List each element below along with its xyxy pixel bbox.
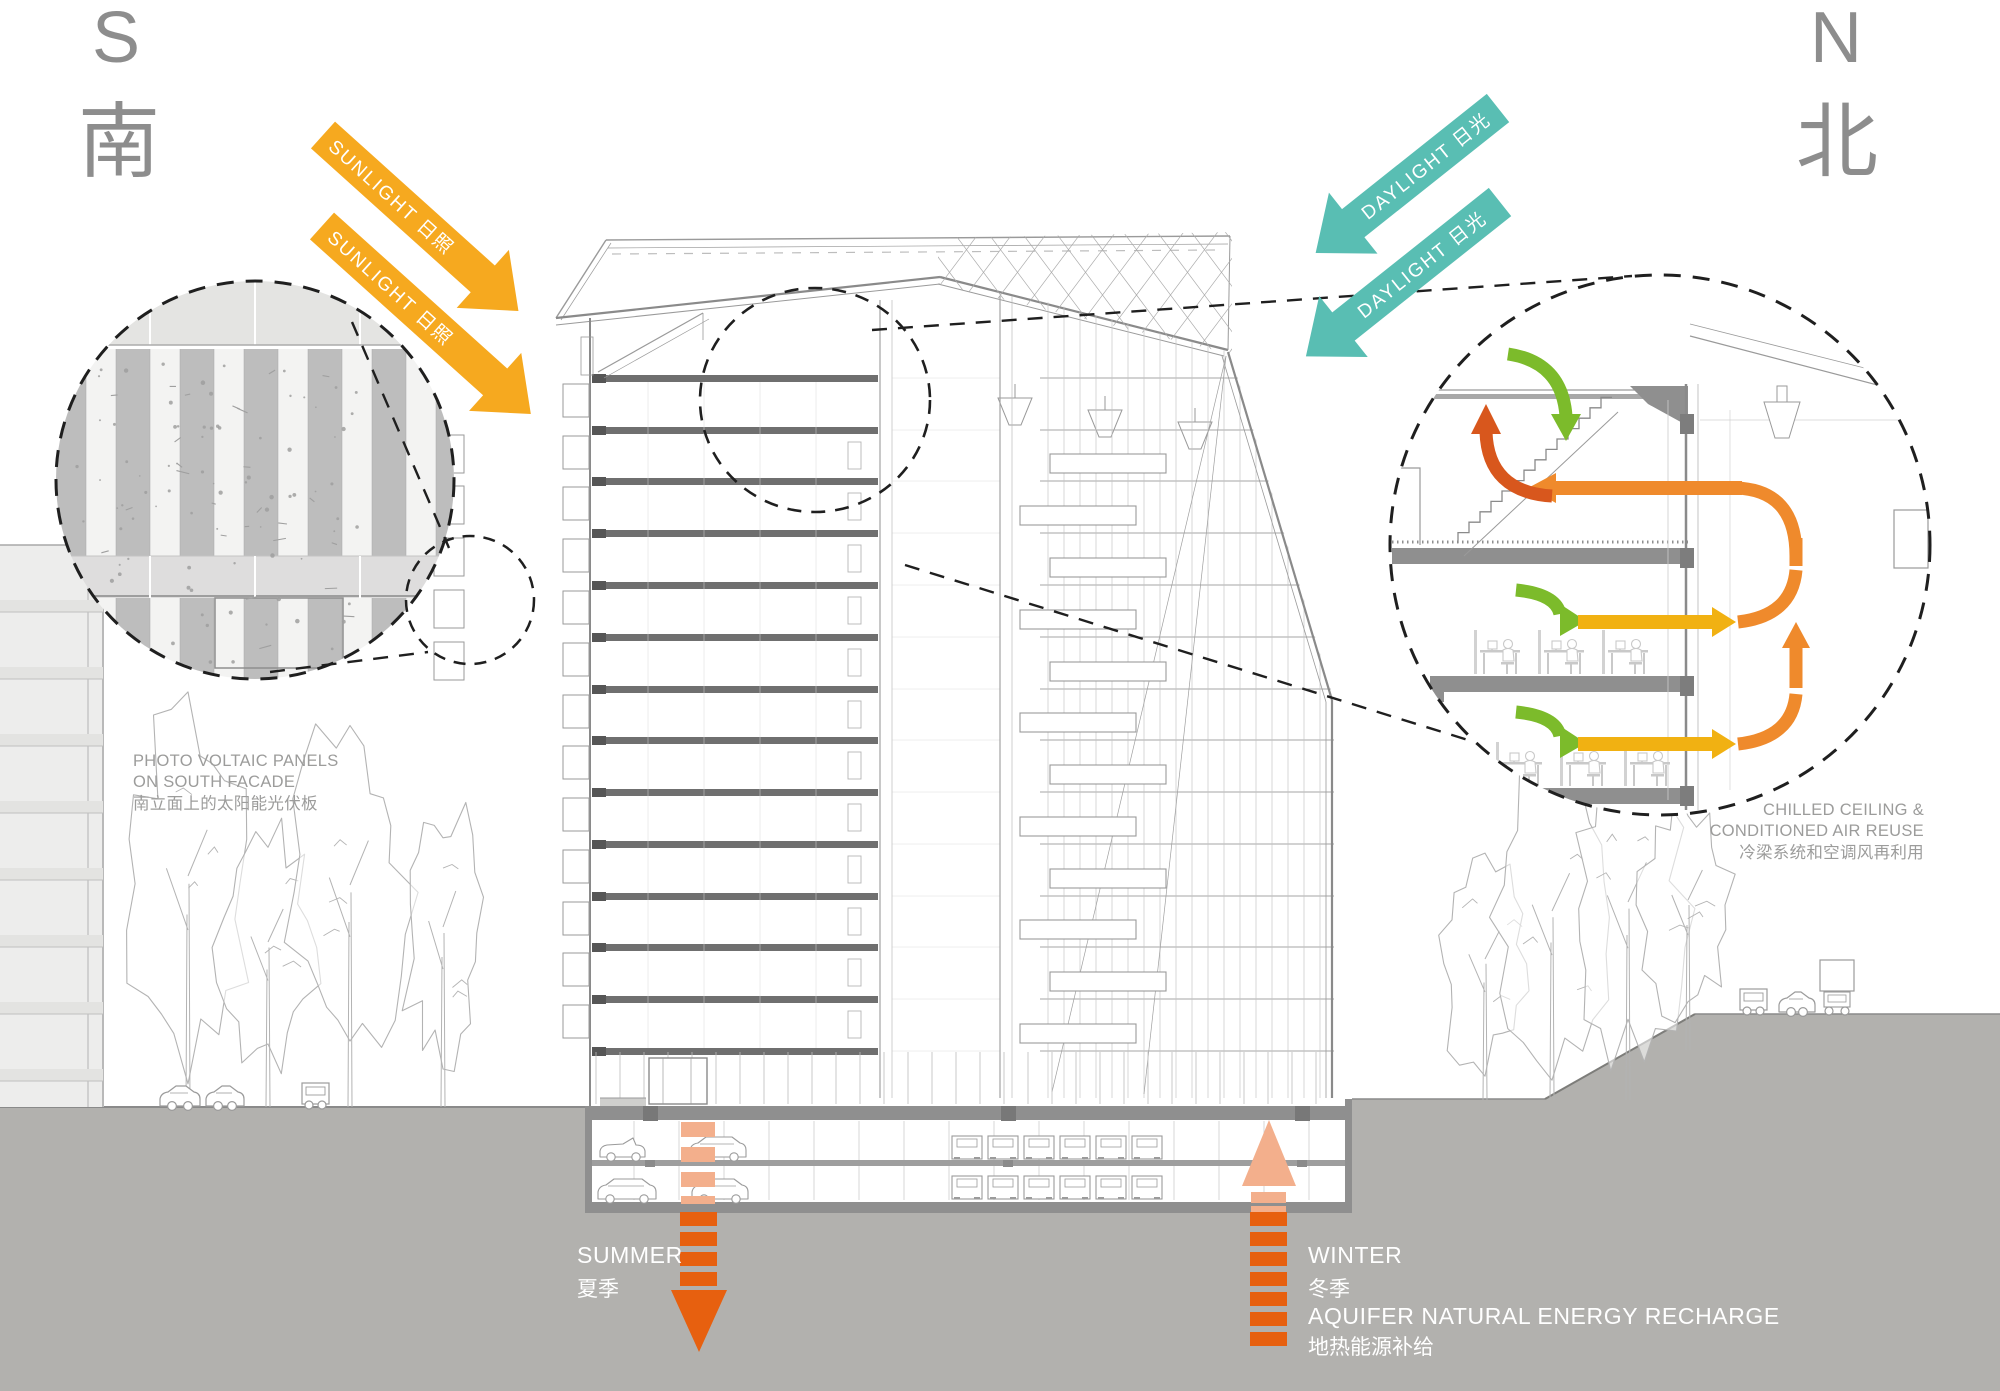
summer-label: SUMMER (577, 1242, 683, 1268)
compass-south-cn: 南 (78, 97, 160, 188)
chilled-label-line3: 冷梁系统和空调风再利用 (1739, 843, 1924, 862)
compass-north-cn: 北 (1796, 97, 1878, 188)
chilled-ceiling-detail-circle (1390, 275, 1952, 815)
building-section-diagram: SUNLIGHT 日照 SUNLIGHT 日照 DAYLIGHT 日光 DAYL… (0, 0, 2000, 1391)
aquifer-label-cn: 地热能源补给 (1308, 1336, 1434, 1359)
chilled-label-line2: CONDITIONED AIR REUSE (1710, 822, 1924, 840)
chilled-label-line1: CHILLED CEILING & (1763, 801, 1924, 819)
daylight-arrow-1: DAYLIGHT 日光 (1291, 77, 1522, 283)
compass-north-letter: N (1810, 0, 1862, 78)
pv-label-line1: PHOTO VOLTAIC PANELS (133, 752, 339, 770)
building-section (434, 225, 1359, 1106)
diagram-stage: SUNLIGHT 日照 SUNLIGHT 日照 DAYLIGHT 日光 DAYL… (0, 0, 2000, 1391)
winter-label-cn: 冬季 (1308, 1278, 1350, 1301)
summer-label-cn: 夏季 (577, 1278, 619, 1301)
pv-label-line2: ON SOUTH FACADE (133, 773, 295, 791)
winter-label: WINTER (1308, 1242, 1402, 1268)
pv-detail-circle (50, 281, 470, 679)
pv-label-line3: 南立面上的太阳能光伏板 (133, 794, 318, 813)
neighbor-building (0, 545, 104, 1107)
aquifer-label: AQUIFER NATURAL ENERGY RECHARGE (1308, 1303, 1780, 1329)
compass-south-letter: S (92, 0, 140, 78)
